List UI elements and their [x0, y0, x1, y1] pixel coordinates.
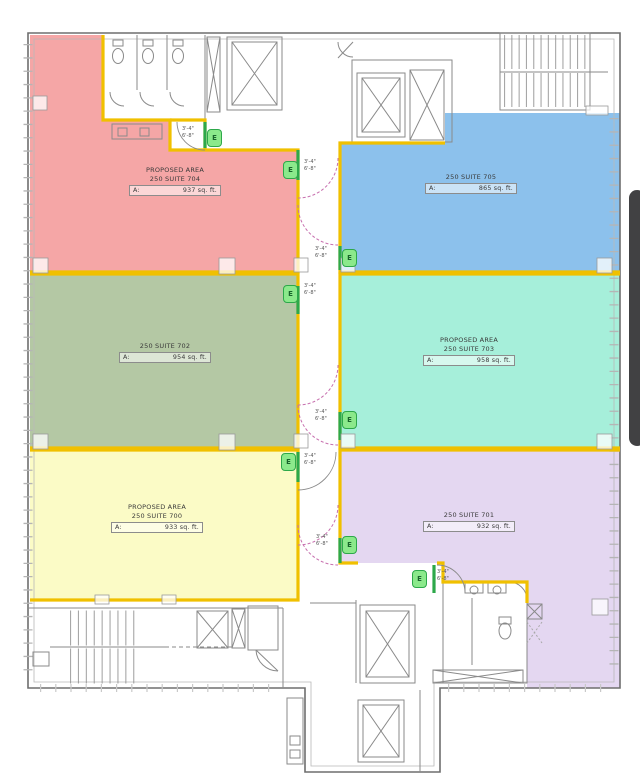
- suite-703-label: PROPOSED AREA 250 SUITE 703 A: 958 sq. f…: [409, 336, 529, 366]
- suite-703-prefix: PROPOSED AREA: [409, 336, 529, 345]
- door-tag: E: [283, 285, 298, 303]
- area-label: A:: [427, 522, 434, 531]
- suite-701-area-box: A: 932 sq. ft.: [423, 521, 515, 532]
- suite-704-label: PROPOSED AREA 250 SUITE 704 A: 937 sq. f…: [115, 166, 235, 196]
- suite-700-area-box: A: 933 sq. ft.: [111, 522, 203, 533]
- area-label: A:: [115, 523, 122, 532]
- suite-702-label: 250 SUITE 702 A: 954 sq. ft.: [105, 342, 225, 363]
- area-label: A:: [429, 184, 436, 193]
- door-tag: E: [207, 129, 222, 147]
- area-label: A:: [427, 356, 434, 365]
- vertical-scrollbar-thumb[interactable]: [629, 190, 640, 446]
- area-value: 932 sq. ft.: [477, 522, 511, 531]
- area-value: 865 sq. ft.: [479, 184, 513, 193]
- suite-703-name: 250 SUITE 703: [409, 345, 529, 354]
- door-dim-704-corridor: 3'-4"6'-8": [304, 159, 316, 172]
- door-tag: E: [342, 411, 357, 429]
- door-dim-702: 3'-4"6'-8": [304, 283, 316, 296]
- area-value: 958 sq. ft.: [477, 356, 511, 365]
- area-value: 954 sq. ft.: [173, 353, 207, 362]
- door-dim-705: 3'-4"6'-8": [315, 246, 327, 259]
- floor-plan-canvas: [0, 0, 640, 777]
- door-dim-700: 3'-4"6'-8": [304, 453, 316, 466]
- suite-704-region: [30, 35, 298, 272]
- suite-704-name: 250 SUITE 704: [115, 175, 235, 184]
- area-label: A:: [133, 186, 140, 195]
- suite-704-area-box: A: 937 sq. ft.: [129, 185, 221, 196]
- door-tag: E: [281, 453, 296, 471]
- door-dim-701-restroom: 3'-4"6'-8": [437, 569, 449, 582]
- door-tag: E: [283, 161, 298, 179]
- area-value: 933 sq. ft.: [165, 523, 199, 532]
- suite-705-label: 250 SUITE 705 A: 865 sq. ft.: [411, 173, 531, 194]
- door-tag: E: [412, 570, 427, 588]
- area-label: A:: [123, 353, 130, 362]
- suite-703-area-box: A: 958 sq. ft.: [423, 355, 515, 366]
- door-dim-703: 3'-4"6'-8": [315, 409, 327, 422]
- suite-700-prefix: PROPOSED AREA: [97, 503, 217, 512]
- area-value: 937 sq. ft.: [183, 186, 217, 195]
- door-dim-704-vestibule: 3'-4"6'-8": [182, 126, 194, 139]
- floor-plan-viewport: PROPOSED AREA 250 SUITE 704 A: 937 sq. f…: [0, 0, 640, 777]
- corridor-swing-arc: [298, 205, 338, 245]
- suite-705-area-box: A: 865 sq. ft.: [425, 183, 517, 194]
- suite-700-name: 250 SUITE 700: [97, 512, 217, 521]
- corridor-swing-arc: [298, 365, 338, 405]
- door-tag: E: [342, 249, 357, 267]
- suite-705-name: 250 SUITE 705: [411, 173, 531, 182]
- suite-700-label: PROPOSED AREA 250 SUITE 700 A: 933 sq. f…: [97, 503, 217, 533]
- suite-701-label: 250 SUITE 701 A: 932 sq. ft.: [409, 511, 529, 532]
- door-dim-701-corridor: 3'-4"6'-8": [316, 534, 328, 547]
- suite-702-area-box: A: 954 sq. ft.: [119, 352, 211, 363]
- suite-702-name: 250 SUITE 702: [105, 342, 225, 351]
- door-tag: E: [342, 536, 357, 554]
- suite-701-name: 250 SUITE 701: [409, 511, 529, 520]
- suite-704-prefix: PROPOSED AREA: [115, 166, 235, 175]
